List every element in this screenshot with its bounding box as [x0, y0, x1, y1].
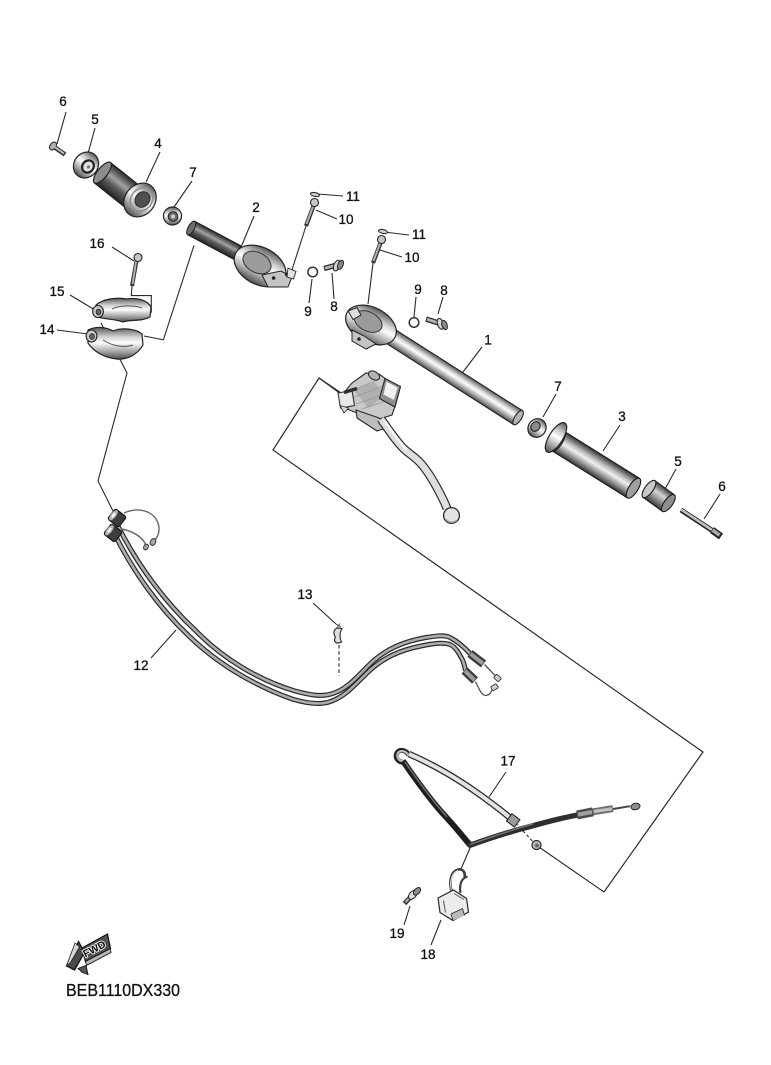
svg-text:3: 3 [618, 409, 626, 424]
svg-text:19: 19 [389, 926, 404, 941]
svg-text:4: 4 [154, 136, 162, 151]
svg-text:1: 1 [484, 333, 492, 348]
svg-text:5: 5 [91, 112, 99, 127]
svg-text:9: 9 [304, 304, 312, 319]
svg-text:16: 16 [89, 236, 104, 251]
svg-text:11: 11 [412, 227, 426, 242]
svg-text:17: 17 [500, 754, 515, 769]
svg-text:7: 7 [189, 165, 197, 180]
svg-text:10: 10 [404, 250, 419, 265]
svg-text:15: 15 [49, 284, 64, 299]
svg-text:10: 10 [338, 212, 353, 227]
svg-text:6: 6 [59, 94, 67, 109]
svg-text:8: 8 [440, 283, 448, 298]
svg-text:13: 13 [297, 587, 312, 602]
svg-text:18: 18 [420, 947, 435, 962]
svg-text:BEB1110DX330: BEB1110DX330 [66, 980, 180, 1000]
svg-text:12: 12 [133, 658, 148, 673]
svg-text:14: 14 [39, 322, 55, 337]
svg-text:11: 11 [346, 189, 360, 204]
svg-text:9: 9 [414, 282, 422, 297]
svg-text:2: 2 [252, 200, 260, 215]
svg-text:7: 7 [554, 379, 562, 394]
svg-text:8: 8 [330, 299, 338, 314]
svg-text:5: 5 [674, 454, 682, 469]
svg-text:6: 6 [718, 479, 726, 494]
